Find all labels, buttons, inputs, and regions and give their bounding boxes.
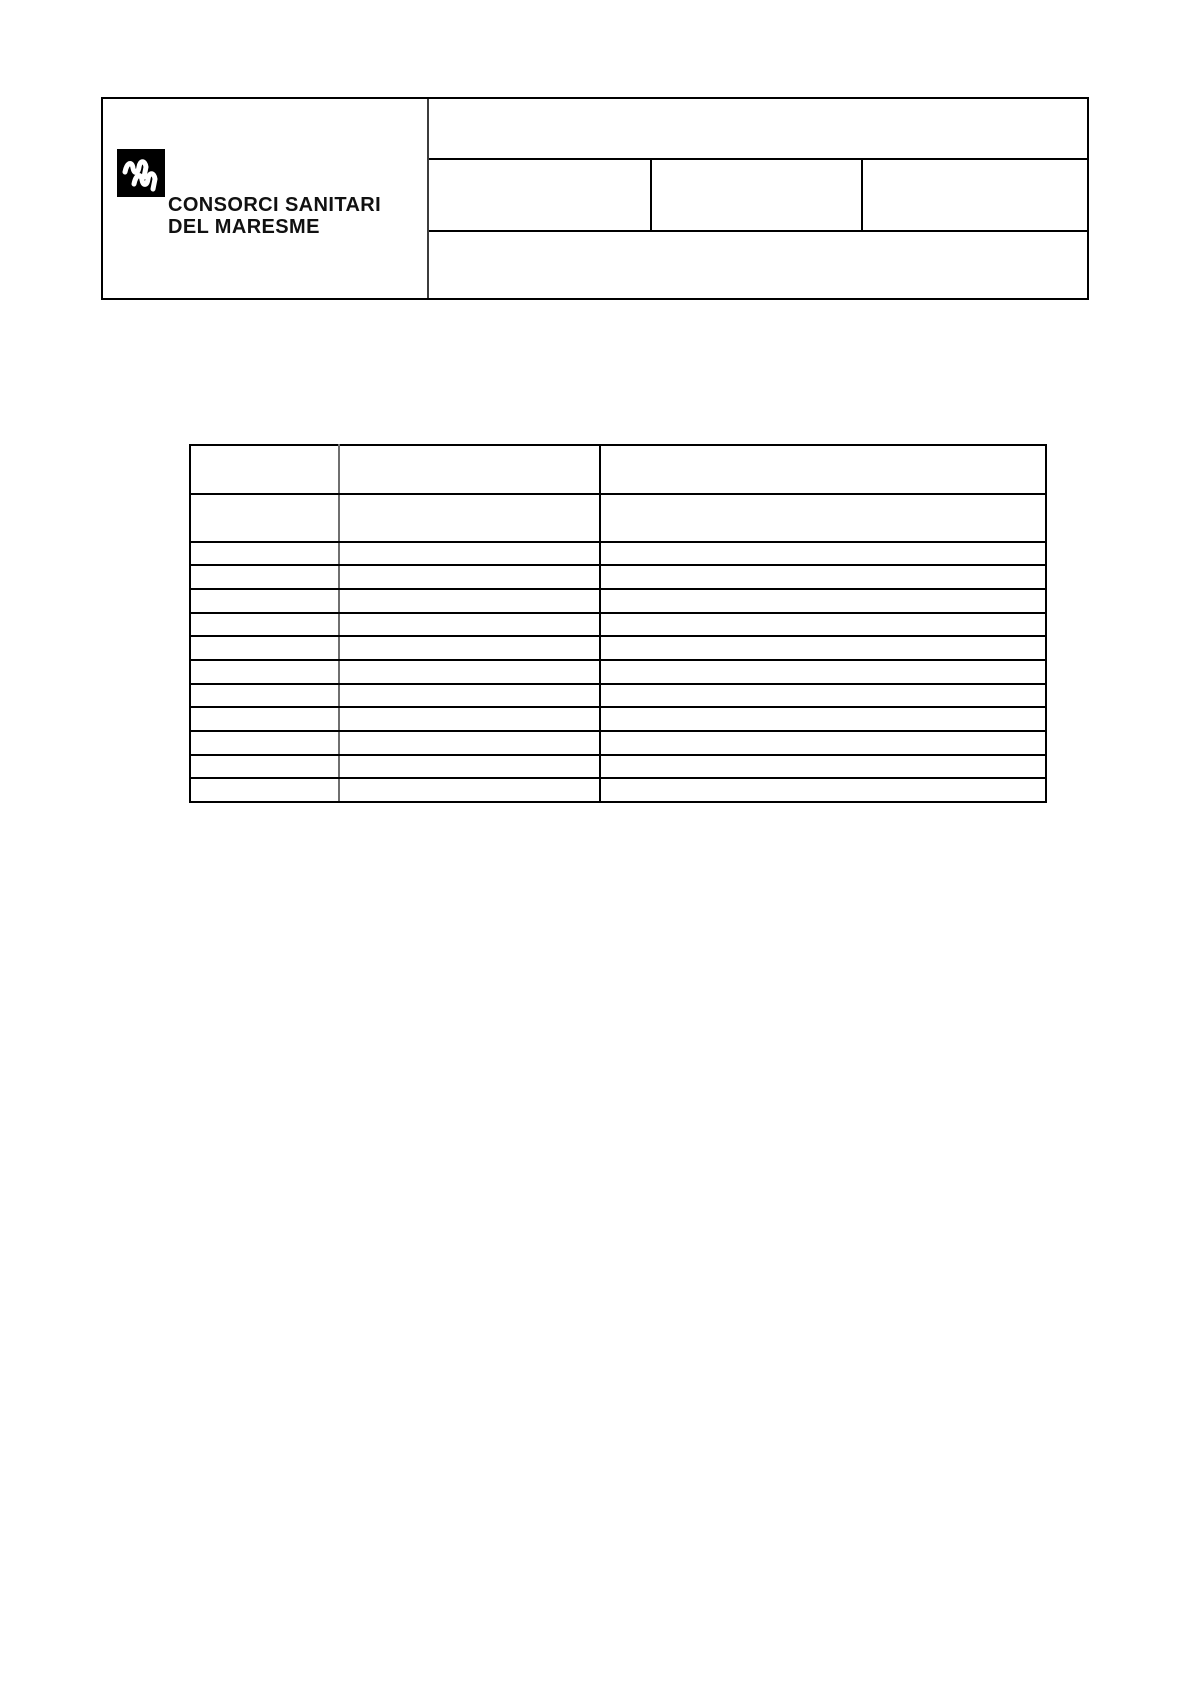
table-cell: [190, 778, 339, 802]
table-cell: [190, 542, 339, 566]
table-cell: [339, 565, 600, 589]
table-cell: [600, 613, 1046, 637]
table-cell: [600, 636, 1046, 660]
table-row: [190, 589, 1046, 613]
table-cell: [339, 778, 600, 802]
table-cell: [600, 707, 1046, 731]
table-cell: [339, 636, 600, 660]
letterhead-meta-row: [429, 160, 1087, 232]
table-cell: [339, 445, 600, 494]
table-cell: [190, 660, 339, 684]
letterhead-meta-cell-2: [652, 160, 863, 230]
table-cell: [600, 660, 1046, 684]
table-cell: [600, 755, 1046, 779]
table-cell: [190, 731, 339, 755]
table-cell: [339, 755, 600, 779]
org-logo-icon: [117, 149, 165, 197]
table-cell: [339, 542, 600, 566]
table-cell: [190, 445, 339, 494]
table-cell: [339, 589, 600, 613]
table-subheader-row: [190, 494, 1046, 541]
table-row: [190, 636, 1046, 660]
table-cell: [600, 445, 1046, 494]
table-cell: [339, 684, 600, 708]
org-name-line2: DEL MARESME: [168, 216, 381, 238]
table-cell: [190, 613, 339, 637]
table-cell: [190, 494, 339, 541]
table-row: [190, 731, 1046, 755]
letterhead-right-section: [429, 99, 1087, 298]
table-row: [190, 755, 1046, 779]
table-cell: [600, 565, 1046, 589]
org-name-line1: CONSORCI SANITARI: [168, 194, 381, 216]
table-row: [190, 778, 1046, 802]
table-row: [190, 660, 1046, 684]
table-row: [190, 684, 1046, 708]
table-row: [190, 542, 1046, 566]
letterhead-title-cell: [429, 99, 1087, 160]
table-row: [190, 707, 1046, 731]
table-cell: [600, 494, 1046, 541]
table-cell: [190, 589, 339, 613]
table-cell: [600, 542, 1046, 566]
table-header-row: [190, 445, 1046, 494]
table-cell: [339, 660, 600, 684]
table-cell: [339, 494, 600, 541]
letterhead-subtitle-cell: [429, 232, 1087, 298]
table-cell: [190, 755, 339, 779]
logo-cell: CONSORCI SANITARI DEL MARESME: [103, 99, 429, 298]
letterhead-meta-cell-1: [429, 160, 652, 230]
table-cell: [190, 565, 339, 589]
table-cell: [339, 613, 600, 637]
table-cell: [600, 589, 1046, 613]
org-name: CONSORCI SANITARI DEL MARESME: [168, 194, 381, 238]
letterhead-meta-cell-3: [863, 160, 1087, 230]
table-cell: [190, 636, 339, 660]
table-row: [190, 565, 1046, 589]
table-cell: [190, 684, 339, 708]
table-cell: [600, 778, 1046, 802]
table-cell: [339, 707, 600, 731]
table-cell: [600, 684, 1046, 708]
letterhead-box: CONSORCI SANITARI DEL MARESME: [101, 97, 1089, 300]
table-cell: [190, 707, 339, 731]
table-cell: [339, 731, 600, 755]
table-cell: [600, 731, 1046, 755]
document-page: CONSORCI SANITARI DEL MARESME: [0, 0, 1191, 1684]
table-row: [190, 613, 1046, 637]
form-table: [189, 444, 1047, 803]
